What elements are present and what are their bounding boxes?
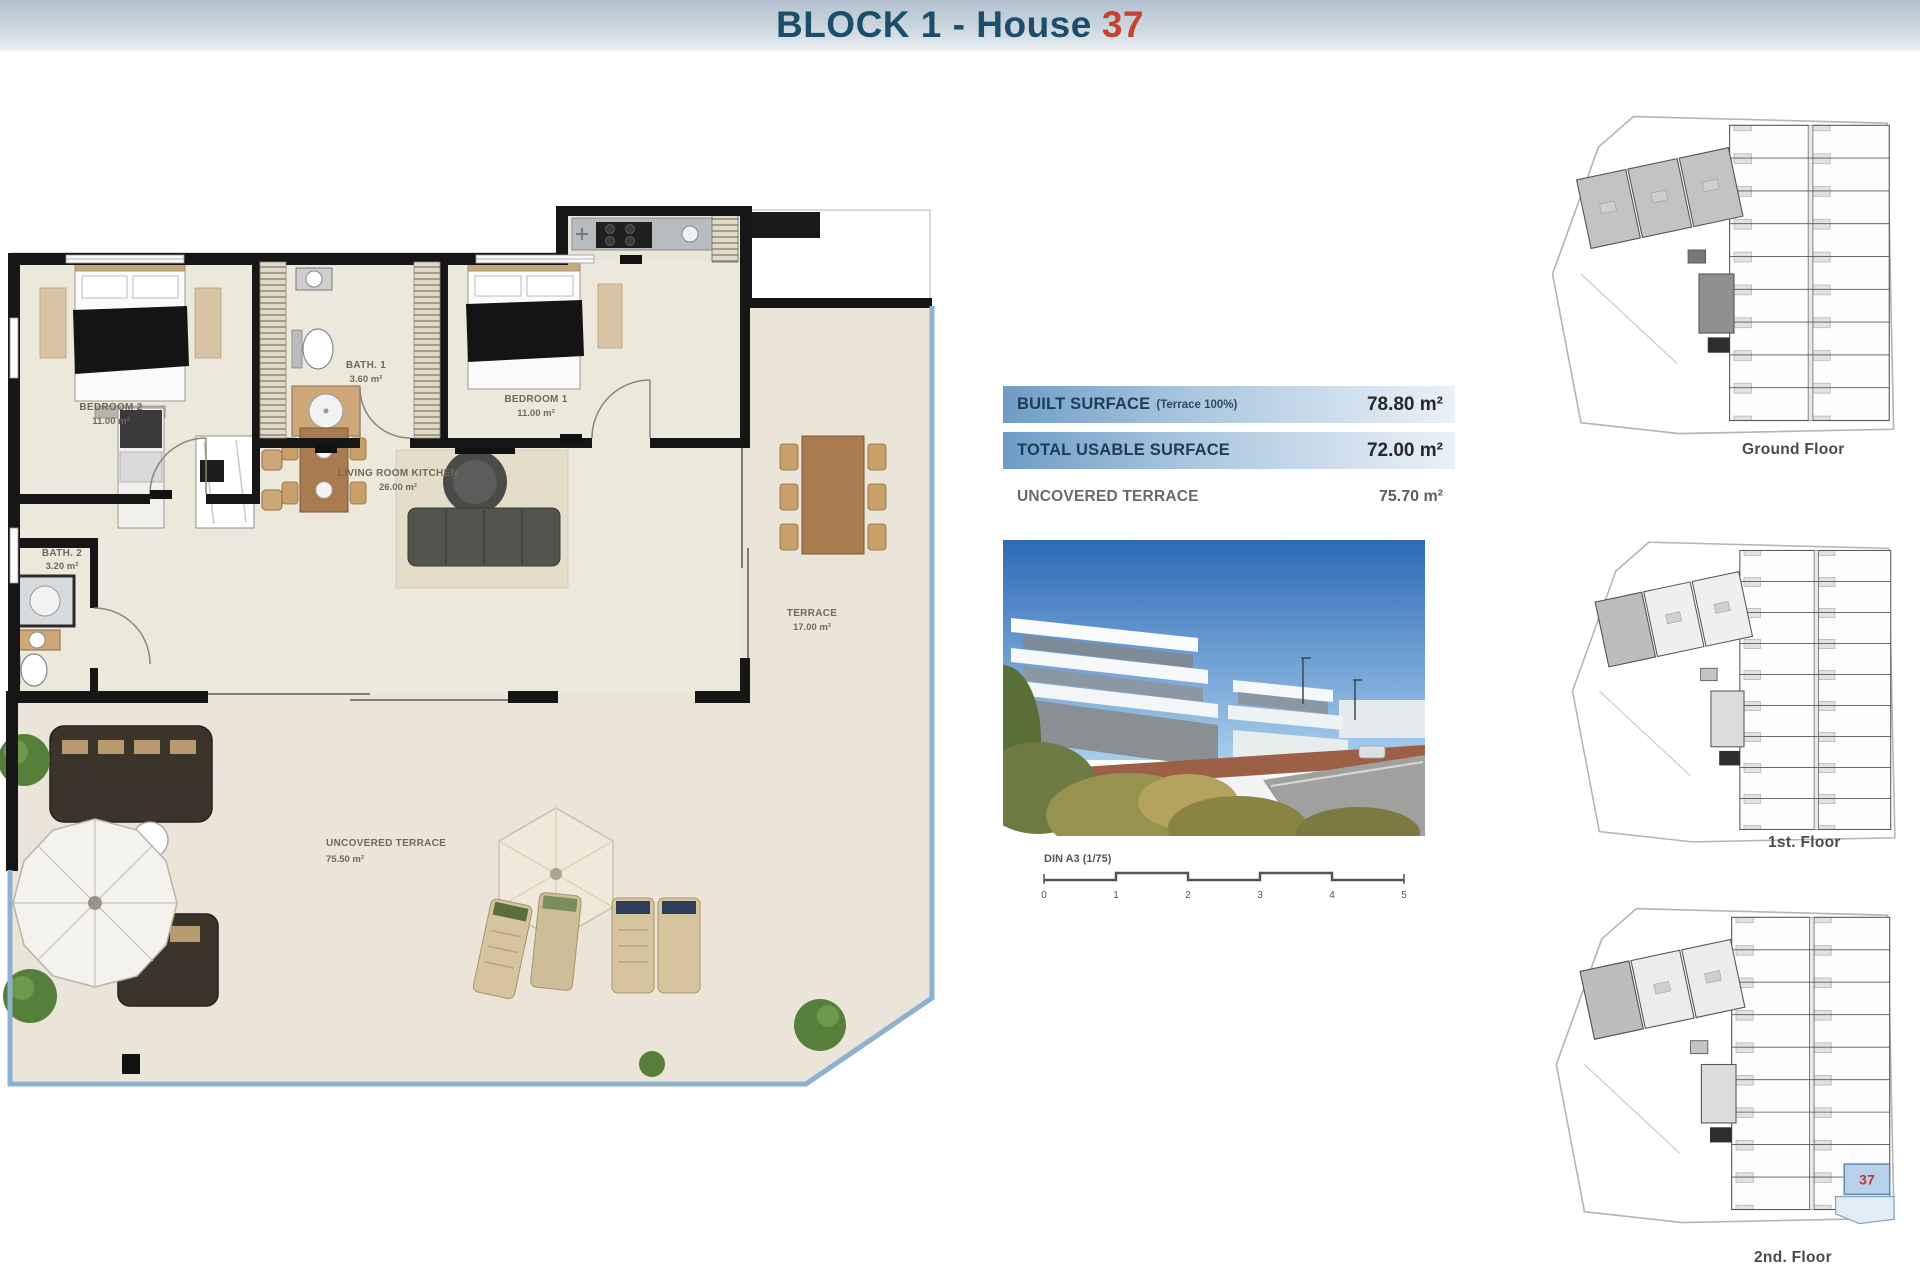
usable-surface-value: 72.00 m² xyxy=(1367,440,1443,462)
scale-tick-4: 4 xyxy=(1329,890,1335,901)
building-photo xyxy=(1003,540,1425,836)
table-row-usable-surface: TOTAL USABLE SURFACE 72.00 m² xyxy=(1003,432,1455,469)
outdoor-lounge-sofa xyxy=(50,726,212,822)
room-label-bath1: BATH. 1 xyxy=(346,360,386,371)
site-plan-second-floor: 37 xyxy=(1552,892,1920,1237)
room-area-bath1: 3.60 m² xyxy=(350,374,383,385)
scale-bar: DIN A3 (1/75) 0 1 2 3 4 5 xyxy=(1040,850,1412,908)
floor-label-first: 1st. Floor xyxy=(1768,834,1841,852)
scale-tick-5: 5 xyxy=(1401,890,1407,901)
room-label-uncovered-terrace: UNCOVERED TERRACE xyxy=(326,838,446,849)
room-label-bedroom2: BEDROOM 2 xyxy=(79,402,142,413)
highlighted-unit-number: 37 xyxy=(1859,1172,1875,1188)
built-surface-label: BUILT SURFACE xyxy=(1017,395,1150,414)
page-title: BLOCK 1 - House37 xyxy=(776,4,1144,46)
closet xyxy=(260,262,286,438)
header-banner: BLOCK 1 - House37 xyxy=(0,0,1920,52)
room-label-bath2: BATH. 2 xyxy=(42,548,82,559)
usable-surface-label: TOTAL USABLE SURFACE xyxy=(1017,441,1230,460)
terrace-dining-table xyxy=(780,436,886,554)
building-photo-image xyxy=(1003,540,1425,836)
floor-label-second: 2nd. Floor xyxy=(1754,1249,1832,1267)
scale-tick-0: 0 xyxy=(1041,890,1047,901)
room-area-bedroom1: 11.00 m² xyxy=(517,408,555,419)
closet xyxy=(414,262,440,438)
room-label-terrace: TERRACE xyxy=(787,608,837,619)
scale-tick-1: 1 xyxy=(1113,890,1119,901)
scale-bar-label: DIN A3 (1/75) xyxy=(1044,853,1112,865)
room-area-bedroom2: 11.00 m² xyxy=(92,416,130,427)
page-title-text: BLOCK 1 - House xyxy=(776,4,1092,45)
apartment-floor-plan: BEDROOM 2 11.00 m² BATH. 1 3.60 m² BEDRO… xyxy=(0,198,940,1096)
house-number: 37 xyxy=(1102,4,1144,45)
built-surface-value: 78.80 m² xyxy=(1367,394,1443,416)
scale-tick-3: 3 xyxy=(1257,890,1263,901)
floor-label-ground: Ground Floor xyxy=(1742,441,1845,459)
car xyxy=(1359,746,1385,758)
room-label-living: LIVING ROOM KITCHEN xyxy=(338,468,458,479)
brochure-page: BLOCK 1 - House37 xyxy=(0,0,1920,1280)
room-label-bedroom1: BEDROOM 1 xyxy=(504,394,567,405)
room-area-terrace: 17.00 m² xyxy=(793,622,831,633)
scale-tick-2: 2 xyxy=(1185,890,1191,901)
site-plan-first-floor xyxy=(1568,536,1920,846)
built-surface-note: (Terrace 100%) xyxy=(1156,399,1237,411)
room-area-living: 26.00 m² xyxy=(379,482,417,493)
scale-bar-rule xyxy=(1044,873,1404,880)
table-row-uncovered-terrace: UNCOVERED TERRACE 75.70 m² xyxy=(1003,478,1455,515)
planter-box xyxy=(122,1054,140,1074)
uncovered-terrace-label: UNCOVERED TERRACE xyxy=(1017,488,1199,506)
room-area-bath2: 3.20 m² xyxy=(46,561,79,572)
room-area-uncovered-terrace: 75.50 m² xyxy=(326,854,364,865)
uncovered-terrace-value: 75.70 m² xyxy=(1379,488,1443,506)
table-row-built-surface: BUILT SURFACE (Terrace 100%) 78.80 m² xyxy=(1003,386,1455,423)
site-plan-ground-floor xyxy=(1548,110,1920,438)
surface-table: BUILT SURFACE (Terrace 100%) 78.80 m² TO… xyxy=(1003,386,1455,524)
